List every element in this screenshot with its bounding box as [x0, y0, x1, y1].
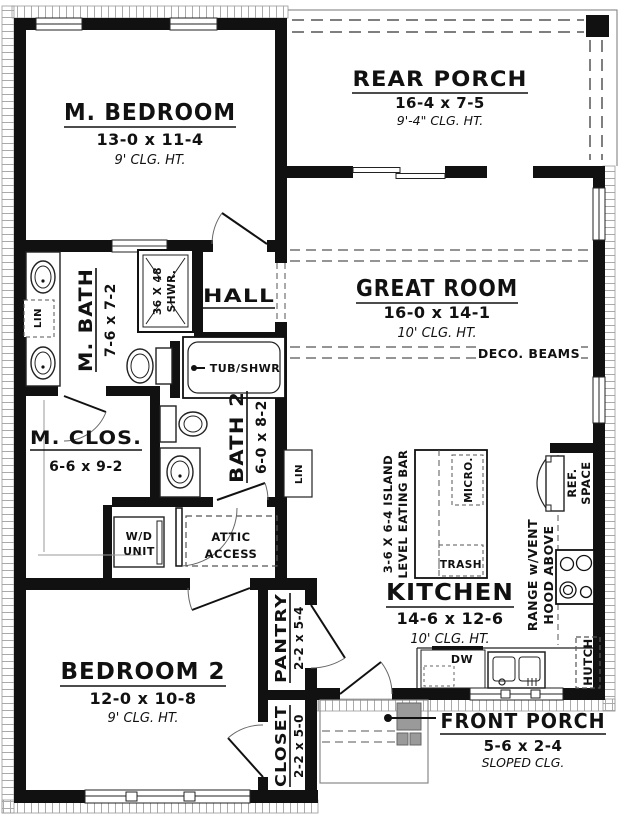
wall-segment	[14, 386, 58, 396]
label-linen-mbath: LIN	[33, 308, 44, 328]
wall-segment	[194, 252, 203, 341]
porch-column	[397, 703, 421, 730]
door-arc-bath2	[265, 483, 268, 500]
refrigerator-hinge	[546, 456, 551, 462]
room-dims-pantry: 2-2 x 5-4	[292, 606, 306, 670]
room-dims-bedroom2: 12-0 x 10-8	[89, 689, 196, 708]
door-leaf-m-bedroom	[222, 213, 267, 244]
door-leaf-bedroom2	[192, 588, 250, 610]
wall-segment	[14, 578, 190, 590]
room-label-front-porch: FRONT PORCH	[441, 709, 606, 733]
door-arc-pantry	[311, 658, 345, 668]
wall-segment	[14, 790, 85, 803]
wall-segment	[593, 166, 605, 700]
note-deco-beams: DECO. BEAMS	[478, 346, 580, 361]
label-wd-1: W/D	[126, 530, 153, 543]
label-dishwasher: DW	[451, 653, 473, 666]
room-label-m-closet: M. CLOS.	[30, 427, 142, 449]
wall-segment	[103, 505, 112, 578]
wall-segment	[14, 18, 26, 803]
door-leaf-bath2	[217, 483, 265, 500]
sink-basin	[35, 352, 51, 374]
label-trash: TRASH	[440, 559, 482, 571]
wall-segment	[563, 688, 605, 700]
sink-basin	[171, 461, 189, 483]
floor-plan-svg: M. BEDROOM 13-0 x 11-4 9' CLG. HT. REAR …	[0, 0, 625, 819]
room-label-m-bedroom: M. BEDROOM	[64, 100, 236, 126]
label-microwave: MICRO.	[463, 457, 475, 503]
window-mullion	[184, 792, 195, 801]
hatch-band-left	[2, 6, 14, 813]
room-label-closet: CLOSET	[272, 705, 290, 787]
room-dims-m-bath: 7-6 x 7-2	[103, 283, 119, 357]
wall-segment	[258, 590, 268, 722]
sink-drain	[178, 474, 181, 477]
hatch-band-top	[12, 6, 288, 18]
refrigerator-hinge	[546, 505, 551, 511]
toilet-bowl-inner	[131, 354, 149, 378]
sink-drain	[41, 279, 44, 282]
room-clg-kitchen: 10' CLG. HT.	[410, 632, 489, 647]
room-clg-bedroom2: 9' CLG. HT.	[108, 711, 179, 726]
toilet-bowl-inner	[184, 416, 202, 432]
front-porch-structure	[320, 700, 436, 783]
room-label-rear-porch: REAR PORCH	[353, 67, 528, 91]
wall-segment	[305, 668, 317, 803]
label-linen-hall: LIN	[294, 464, 305, 484]
sink-drain	[41, 365, 44, 368]
wall-segment	[267, 240, 287, 252]
wall-segment	[445, 166, 487, 178]
refrigerator	[546, 456, 564, 511]
label-island-2: LEVEL EATING BAR	[396, 450, 410, 579]
room-dims-m-closet: 6-6 x 9-2	[49, 459, 123, 475]
room-clg-front-porch: SLOPED CLG.	[482, 755, 565, 770]
wall-segment	[267, 497, 287, 507]
tub-faucet-knob	[191, 365, 197, 371]
room-dims-closet: 2-2 x 5-0	[292, 714, 306, 778]
wall-segment	[150, 386, 160, 507]
wall-segment	[112, 497, 213, 507]
label-shower: SHWR.	[166, 270, 178, 313]
label-shower-size: 36 X 48	[152, 267, 164, 315]
wall-segment	[14, 240, 112, 252]
room-label-pantry: PANTRY	[272, 593, 290, 683]
sliding-door-panel	[353, 168, 400, 173]
room-dims-front-porch: 5-6 x 2-4	[484, 737, 563, 755]
room-label-bath2: BATH 2	[226, 391, 248, 483]
room-label-m-bath: M. BATH	[75, 268, 97, 372]
label-range-2: HOOD ABOVE	[541, 525, 556, 624]
door-arc-closet	[228, 725, 263, 738]
wall-segment	[275, 18, 287, 263]
door-arc-front	[381, 662, 392, 694]
door-arc-bedroom2	[188, 588, 192, 610]
room-clg-great-room: 10' CLG. HT.	[397, 326, 476, 341]
wall-segment	[250, 578, 317, 590]
window-mullion	[501, 690, 510, 698]
door-leaf-m-closet	[64, 396, 106, 412]
label-hutch: HUTCH	[581, 638, 595, 685]
label-attic-1: ATTIC	[211, 530, 250, 544]
wall-segment	[305, 590, 317, 605]
label-range-1: RANGE w/VENT	[525, 519, 540, 631]
label-attic-2: ACCESS	[205, 547, 258, 561]
label-island-1: 3-6 X 6-4 ISLAND	[381, 455, 395, 573]
wall-segment	[550, 443, 605, 453]
label-ref-2: SPACE	[579, 461, 593, 504]
room-dims-m-bedroom: 13-0 x 11-4	[96, 130, 203, 149]
door-leaf-pantry	[311, 605, 345, 658]
door-leaf-front	[340, 662, 381, 694]
porch-column	[397, 733, 408, 745]
toilet-tank	[160, 406, 176, 442]
room-label-kitchen: KITCHEN	[386, 580, 514, 606]
porch-column	[410, 733, 421, 745]
door-arc-m-bedroom	[212, 213, 222, 244]
room-label-great-room: GREAT ROOM	[356, 276, 518, 302]
label-tub: TUB/SHWR	[210, 362, 281, 375]
door-leaf-corridor	[176, 508, 182, 566]
wall-segment	[317, 688, 340, 700]
refrigerator-door-arc	[537, 459, 546, 508]
room-label-bedroom2: BEDROOM 2	[61, 659, 226, 685]
wall-segment	[533, 166, 593, 178]
porch-post	[586, 15, 609, 37]
floor-plan: M. BEDROOM 13-0 x 11-4 9' CLG. HT. REAR …	[0, 0, 625, 819]
room-label-hall: HALL	[203, 285, 275, 307]
wall-segment	[250, 790, 318, 803]
room-dims-rear-porch: 16-4 x 7-5	[395, 94, 485, 112]
room-dims-great-room: 16-0 x 14-1	[383, 303, 490, 322]
wall-segment	[392, 688, 470, 700]
toilet-tank	[156, 348, 172, 384]
room-dims-kitchen: 14-6 x 12-6	[396, 609, 503, 628]
window-mullion	[531, 690, 540, 698]
room-clg-m-bedroom: 9' CLG. HT.	[115, 153, 186, 168]
label-ref-1: REF.	[565, 468, 579, 497]
room-dims-bath2: 6-0 x 8-2	[254, 400, 270, 474]
door-leaf-closet	[228, 738, 263, 777]
sink-basin	[35, 266, 51, 288]
room-clg-rear-porch: 9'-4" CLG. HT.	[397, 113, 483, 128]
window-mullion	[126, 792, 137, 801]
wall-segment	[287, 166, 353, 178]
sliding-door-panel	[396, 174, 445, 179]
label-wd-2: UNIT	[123, 545, 155, 558]
